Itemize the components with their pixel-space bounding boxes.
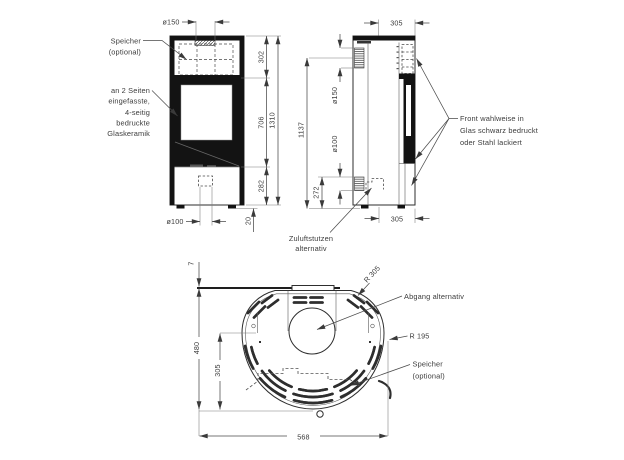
front-right-foot <box>228 205 236 209</box>
top-dim-568: 568 <box>297 433 309 442</box>
side-dim-305-bottom: 305 <box>391 215 403 224</box>
technical-drawing-stove: ø150 302 706 282 1310 20 ø100 <box>0 0 624 460</box>
side-dim-272: 272 <box>312 186 321 198</box>
side-front-label-line2: Glas schwarz bedruckt <box>460 126 538 135</box>
front-glass-window <box>181 85 232 140</box>
drawing-canvas: ø150 302 706 282 1310 20 ø100 <box>0 0 624 460</box>
side-dim-d150: ø150 <box>330 87 339 104</box>
front-dim-20: 20 <box>244 217 253 225</box>
side-front-lower-panel <box>404 141 416 164</box>
side-front-label-line3: oder Stahl lackiert <box>460 138 522 147</box>
side-top-cap <box>353 36 415 41</box>
side-dim-305-top: 305 <box>390 19 402 28</box>
side-front-label-line1: Front wahlweise in <box>460 114 524 123</box>
front-dim-1310: 1310 <box>268 112 277 129</box>
side-front-glass-strip <box>406 85 411 136</box>
front-glass-label-line2: eingefasste, <box>108 97 150 106</box>
front-dim-d100: ø100 <box>167 217 184 226</box>
top-speicher-label-line2: (optional) <box>413 372 445 381</box>
front-flue-collar <box>195 41 215 46</box>
top-view: 7 480 305 568 R 305 Abgang alternativ <box>187 261 465 441</box>
front-speicher-label-line1: Speicher <box>111 37 142 46</box>
side-flue-outlet-hatched <box>355 48 365 68</box>
side-zuluft-hatched <box>355 177 365 191</box>
front-glass-label-line5: Glaskeramik <box>107 129 150 138</box>
front-glass-label-line3: 4-seitig <box>125 108 150 117</box>
front-dim-302: 302 <box>257 51 266 63</box>
top-front-knob <box>317 411 323 417</box>
top-abgang-label: Abgang alternativ <box>404 292 464 301</box>
front-option-leader-3 <box>412 119 450 186</box>
front-speicher-label-line2: (optional) <box>109 48 141 57</box>
top-flue-circle <box>289 308 335 354</box>
side-front-foot <box>398 205 406 209</box>
front-dim-706: 706 <box>257 116 266 128</box>
front-view-geometry <box>170 36 244 209</box>
front-option-leader-1 <box>417 59 459 119</box>
top-dim-480: 480 <box>192 342 201 354</box>
front-left-pillar <box>170 36 175 205</box>
front-divider <box>175 75 240 82</box>
side-view: 305 1137 ø150 ø100 272 <box>289 19 538 254</box>
side-top-vent <box>357 41 371 44</box>
r195-leader-line <box>390 336 408 340</box>
front-dim-d150: ø150 <box>163 18 180 27</box>
top-dim-305: 305 <box>213 364 222 376</box>
front-view: ø150 302 706 282 1310 20 ø100 <box>107 18 281 233</box>
side-divider <box>399 74 415 80</box>
front-option-leader-2 <box>416 119 450 160</box>
side-dim-d100: ø100 <box>330 136 339 153</box>
front-glass-label-line1: an 2 Seiten <box>111 86 150 95</box>
side-dim-1137: 1137 <box>297 122 306 138</box>
side-zuluft-label-line2: alternativ <box>295 244 327 253</box>
front-left-foot <box>177 205 185 209</box>
top-flue-box-rear <box>292 286 334 291</box>
top-door-handle <box>379 381 391 398</box>
top-r195-label: R 195 <box>410 332 430 341</box>
top-speicher-label-line1: Speicher <box>413 360 444 369</box>
front-dim-282: 282 <box>257 180 266 192</box>
side-view-geometry <box>353 36 415 209</box>
front-glass-label-line4: bedruckte <box>116 119 150 128</box>
front-right-pillar <box>240 36 245 205</box>
side-zuluft-label-line1: Zuluftstutzen <box>289 234 333 243</box>
top-dim-7: 7 <box>187 261 196 265</box>
zuluft-leader-line <box>330 188 372 233</box>
side-rear-foot <box>361 205 369 209</box>
front-top-cap <box>170 36 244 41</box>
top-r305-label: R 305 <box>362 264 382 285</box>
top-view-geometry <box>197 286 391 418</box>
